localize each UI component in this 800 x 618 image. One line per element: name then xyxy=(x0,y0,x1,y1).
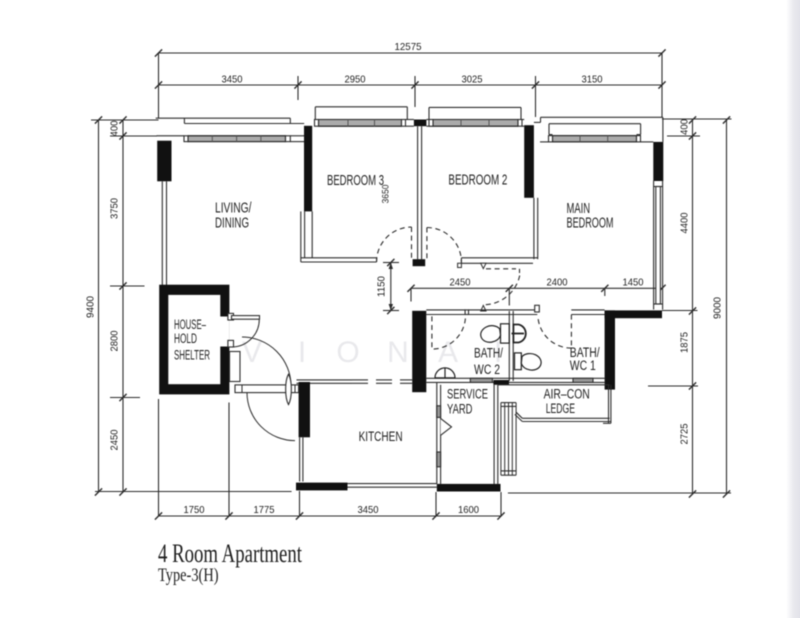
svg-text:O: O xyxy=(336,336,359,369)
svg-text:2725: 2725 xyxy=(679,423,691,444)
svg-text:1600: 1600 xyxy=(458,504,479,516)
svg-text:3450: 3450 xyxy=(358,504,379,516)
svg-text:3025: 3025 xyxy=(462,74,483,86)
svg-text:SERVICE: SERVICE xyxy=(447,387,488,402)
svg-text:1450: 1450 xyxy=(623,277,644,289)
svg-text:SHELTER: SHELTER xyxy=(174,348,210,363)
svg-text:A: A xyxy=(438,336,458,369)
svg-text:I: I xyxy=(298,336,306,369)
svg-text:WC 2: WC 2 xyxy=(474,362,500,377)
svg-text:V: V xyxy=(242,336,262,369)
svg-text:1775: 1775 xyxy=(254,504,275,516)
svg-text:3450: 3450 xyxy=(222,74,243,86)
svg-text:1150: 1150 xyxy=(375,276,387,297)
svg-text:WC 1: WC 1 xyxy=(570,358,596,373)
svg-text:9400: 9400 xyxy=(85,296,97,318)
svg-text:400: 400 xyxy=(679,119,691,135)
svg-text:9000: 9000 xyxy=(712,297,724,319)
svg-text:2950: 2950 xyxy=(345,74,366,86)
svg-text:BEDROOM: BEDROOM xyxy=(567,215,614,232)
svg-text:LEDGE: LEDGE xyxy=(546,401,575,416)
svg-text:KITCHEN: KITCHEN xyxy=(359,429,403,444)
svg-text:4 Room Apartment: 4 Room Apartment xyxy=(158,539,303,568)
svg-text:AIR–CON: AIR–CON xyxy=(544,387,590,402)
svg-text:1875: 1875 xyxy=(679,332,691,353)
svg-text:YARD: YARD xyxy=(447,401,473,416)
svg-text:HOLD: HOLD xyxy=(174,331,197,346)
svg-text:N: N xyxy=(387,336,409,369)
svg-text:3750: 3750 xyxy=(109,198,121,219)
svg-text:BEDROOM 3: BEDROOM 3 xyxy=(327,172,384,189)
svg-text:400: 400 xyxy=(109,120,121,136)
svg-text:DINING: DINING xyxy=(215,215,249,232)
svg-text:BEDROOM 2: BEDROOM 2 xyxy=(448,171,507,188)
svg-text:12575: 12575 xyxy=(395,41,422,53)
svg-text:2450: 2450 xyxy=(450,277,471,289)
svg-text:1750: 1750 xyxy=(184,504,205,516)
svg-text:4400: 4400 xyxy=(679,212,691,233)
svg-text:2450: 2450 xyxy=(109,429,121,450)
svg-text:Type-3(H): Type-3(H) xyxy=(158,565,219,586)
svg-text:2800: 2800 xyxy=(109,330,121,351)
svg-text:BATH/: BATH/ xyxy=(474,346,503,361)
svg-text:2400: 2400 xyxy=(547,277,568,289)
svg-text:3150: 3150 xyxy=(582,74,603,86)
svg-text:HOUSE–: HOUSE– xyxy=(174,317,206,332)
